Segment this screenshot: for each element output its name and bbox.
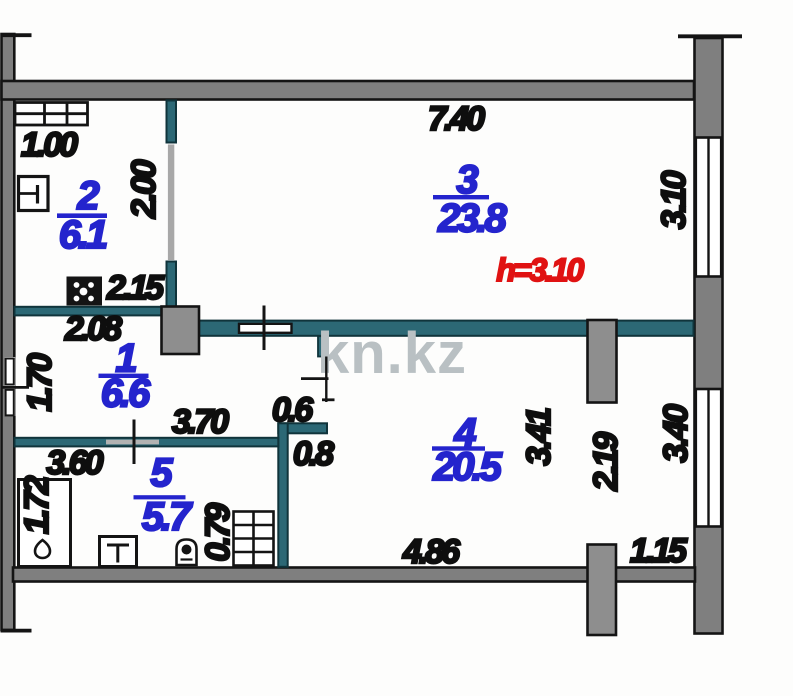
svg-text:0.6: 0.6 (272, 391, 314, 429)
svg-text:2.08: 2.08 (64, 310, 122, 348)
svg-text:3.70: 3.70 (172, 403, 229, 441)
svg-text:kn.kz: kn.kz (317, 321, 467, 386)
svg-text:6.1: 6.1 (59, 213, 107, 257)
svg-text:0.8: 0.8 (293, 435, 334, 473)
svg-text:3.41: 3.41 (520, 408, 558, 466)
svg-text:0.79: 0.79 (199, 503, 237, 562)
svg-text:2.19: 2.19 (587, 432, 625, 492)
svg-text:1.15: 1.15 (630, 532, 688, 570)
svg-text:2: 2 (76, 174, 99, 218)
svg-text:5.7: 5.7 (142, 495, 193, 539)
svg-text:2.00: 2.00 (125, 159, 163, 219)
svg-text:3.10: 3.10 (655, 170, 693, 229)
svg-text:7.40: 7.40 (428, 100, 485, 138)
svg-text:3.40: 3.40 (657, 404, 695, 463)
svg-text:2.15: 2.15 (106, 269, 165, 307)
svg-text:4.86: 4.86 (402, 533, 461, 571)
svg-text:23.8: 23.8 (437, 197, 508, 241)
svg-text:1.72: 1.72 (18, 475, 56, 534)
svg-text:1.70: 1.70 (21, 353, 59, 412)
svg-text:20.5: 20.5 (432, 445, 503, 489)
svg-text:h=3.10: h=3.10 (496, 252, 584, 288)
svg-text:1.00: 1.00 (21, 126, 78, 164)
svg-text:6.6: 6.6 (101, 372, 151, 416)
svg-text:3.60: 3.60 (46, 444, 103, 482)
